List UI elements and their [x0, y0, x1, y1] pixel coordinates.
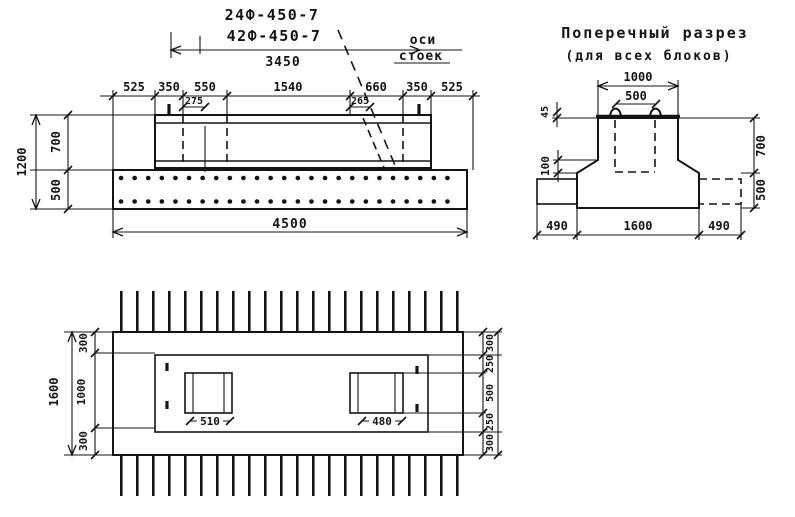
dim-1000-plan: 1000 — [75, 379, 88, 406]
cross-section-view: Поперечный разрез (для всех блоков) 1000… — [533, 24, 768, 240]
plan-axis-dashes — [167, 363, 417, 412]
dim-300-top-left: 300 — [77, 333, 90, 353]
product-mark-bottom: 42Ф-450-7 — [227, 27, 322, 45]
plan-right-socket-walls — [358, 373, 395, 413]
dim-45-lines — [552, 102, 598, 127]
plan-view: 510 480 1600 300 1000 300 300 250 500 25… — [47, 291, 502, 476]
dim-300-top-right: 300 — [485, 334, 496, 352]
product-mark-top: 24Ф-450-7 — [225, 6, 320, 24]
dim-275: 275 — [185, 96, 203, 107]
axis-note-line1: оси — [410, 33, 436, 48]
technical-drawing: 24Ф-450-7 42Ф-450-7 3450 оси стоек 525 3… — [0, 0, 795, 517]
dim-500-slab: 500 — [49, 179, 63, 201]
dim-chain-1540: 1540 — [274, 80, 303, 94]
dim-100-lines — [553, 150, 598, 182]
dim-500-right: 500 — [485, 384, 496, 402]
section-socket-dashed — [615, 120, 655, 172]
plan-left-socket — [185, 373, 232, 413]
section-title-line2: (для всех блоков) — [565, 49, 732, 64]
dim-45: 45 — [540, 106, 551, 118]
dim-500-opening: 500 — [625, 89, 647, 103]
dim-490-right: 490 — [708, 219, 730, 233]
post-axis-dim-ticks — [179, 103, 374, 111]
dim-510: 510 — [200, 415, 220, 428]
dim-3450: 3450 — [265, 55, 300, 70]
dim-chain-350-left: 350 — [158, 80, 180, 94]
plan-left-socket-walls — [193, 373, 224, 413]
section-body-outline — [577, 118, 699, 208]
dim-4500: 4500 — [272, 217, 307, 232]
dim-1600-plan: 1600 — [47, 378, 61, 407]
dim-1600-base: 1600 — [624, 219, 653, 233]
dim-chain-350-right: 350 — [406, 80, 428, 94]
dim-300-bottom-left: 300 — [77, 431, 90, 451]
dim-490-left: 490 — [546, 219, 568, 233]
dim-chain-525-right: 525 — [441, 80, 463, 94]
dim-250-bottom-right: 250 — [485, 413, 496, 431]
dim-1000: 1000 — [624, 70, 653, 84]
top-chain-extensions — [113, 90, 473, 170]
dim-250-top-right: 250 — [485, 355, 496, 373]
dim-1200: 1200 — [15, 148, 29, 177]
beam-flange-lines — [155, 123, 431, 161]
plan-block-outline — [113, 332, 463, 455]
axis-note-line2: стоек — [399, 49, 443, 64]
dim-300-bottom-right: 300 — [485, 434, 496, 452]
dim-700-upper: 700 — [754, 135, 768, 157]
elevation-view: 24Ф-450-7 42Ф-450-7 3450 оси стоек 525 3… — [15, 6, 480, 238]
dim-chain-525-left: 525 — [123, 80, 145, 94]
section-title-line1: Поперечный разрез — [561, 24, 749, 42]
dim-chain-550: 550 — [194, 80, 216, 94]
dim-chain-660: 660 — [365, 80, 387, 94]
drawing-sheet: 24Ф-450-7 42Ф-450-7 3450 оси стоек 525 3… — [0, 0, 795, 517]
dim-480: 480 — [372, 415, 392, 428]
right-wing-block-dashed — [699, 179, 741, 204]
slab-outline — [113, 170, 467, 209]
right-chain-lines — [678, 118, 760, 208]
dim-500-base: 500 — [754, 179, 768, 201]
dim-100: 100 — [539, 156, 552, 176]
left-wing-block — [537, 179, 577, 204]
dim-700-beam: 700 — [49, 131, 63, 153]
